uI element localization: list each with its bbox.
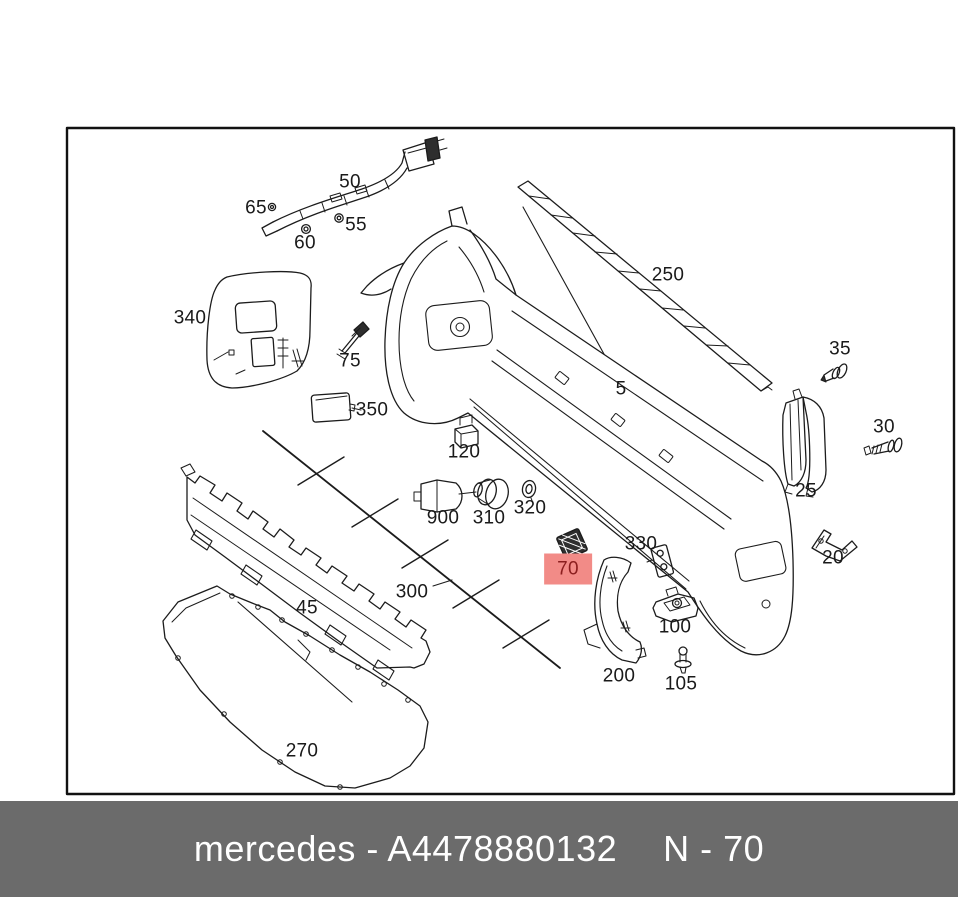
part-label-60: 60 (294, 234, 316, 253)
part-label-25: 25 (795, 482, 817, 501)
part-label-105: 105 (665, 675, 698, 694)
part-label-120: 120 (448, 443, 481, 462)
part-label-340: 340 (174, 309, 207, 328)
part-65-screw-drawing (268, 203, 275, 210)
part-label-320: 320 (514, 499, 547, 518)
part-label-45: 45 (296, 599, 318, 618)
part-label-20: 20 (822, 549, 844, 568)
part-label-75: 75 (339, 352, 361, 371)
part-label-330: 330 (625, 535, 658, 554)
footer-caption-bar: mercedes - A4478880132 N - 70 (0, 801, 958, 897)
part-label-900: 900 (427, 509, 460, 528)
part-35-clip-drawing (821, 363, 849, 382)
part-label-5: 5 (616, 380, 627, 399)
part-label-65: 65 (245, 199, 267, 218)
part-label-250: 250 (652, 266, 685, 285)
part-label-270: 270 (286, 742, 319, 761)
part-label-350: 350 (356, 401, 389, 420)
footer-brand-part-number: mercedes - A4478880132 (194, 828, 617, 870)
part-105-rivet-drawing (675, 647, 691, 673)
part-340-panel-drawing (207, 272, 311, 388)
part-label-30: 30 (873, 418, 895, 437)
part-200-bracket-drawing (584, 557, 646, 663)
part-label-310: 310 (473, 509, 506, 528)
part-label-70-highlighted: 70 (544, 554, 592, 585)
part-55-screw-drawing (335, 214, 343, 222)
part-label-200: 200 (603, 667, 636, 686)
part-30-screw-drawing (864, 437, 903, 455)
part-label-35: 35 (829, 340, 851, 359)
diagram-frame (67, 128, 954, 794)
part-label-50: 50 (339, 173, 361, 192)
part-label-300: 300 (396, 583, 429, 602)
part-310-sensor-drawing (472, 477, 511, 512)
footer-sheet-reference: N - 70 (663, 828, 764, 870)
part-label-55: 55 (345, 216, 367, 235)
part-label-100: 100 (659, 618, 692, 637)
parts-catalog-page: 50 65 60 55 340 75 350 250 5 35 30 25 12… (0, 0, 958, 897)
part-350-box-drawing (311, 393, 361, 423)
